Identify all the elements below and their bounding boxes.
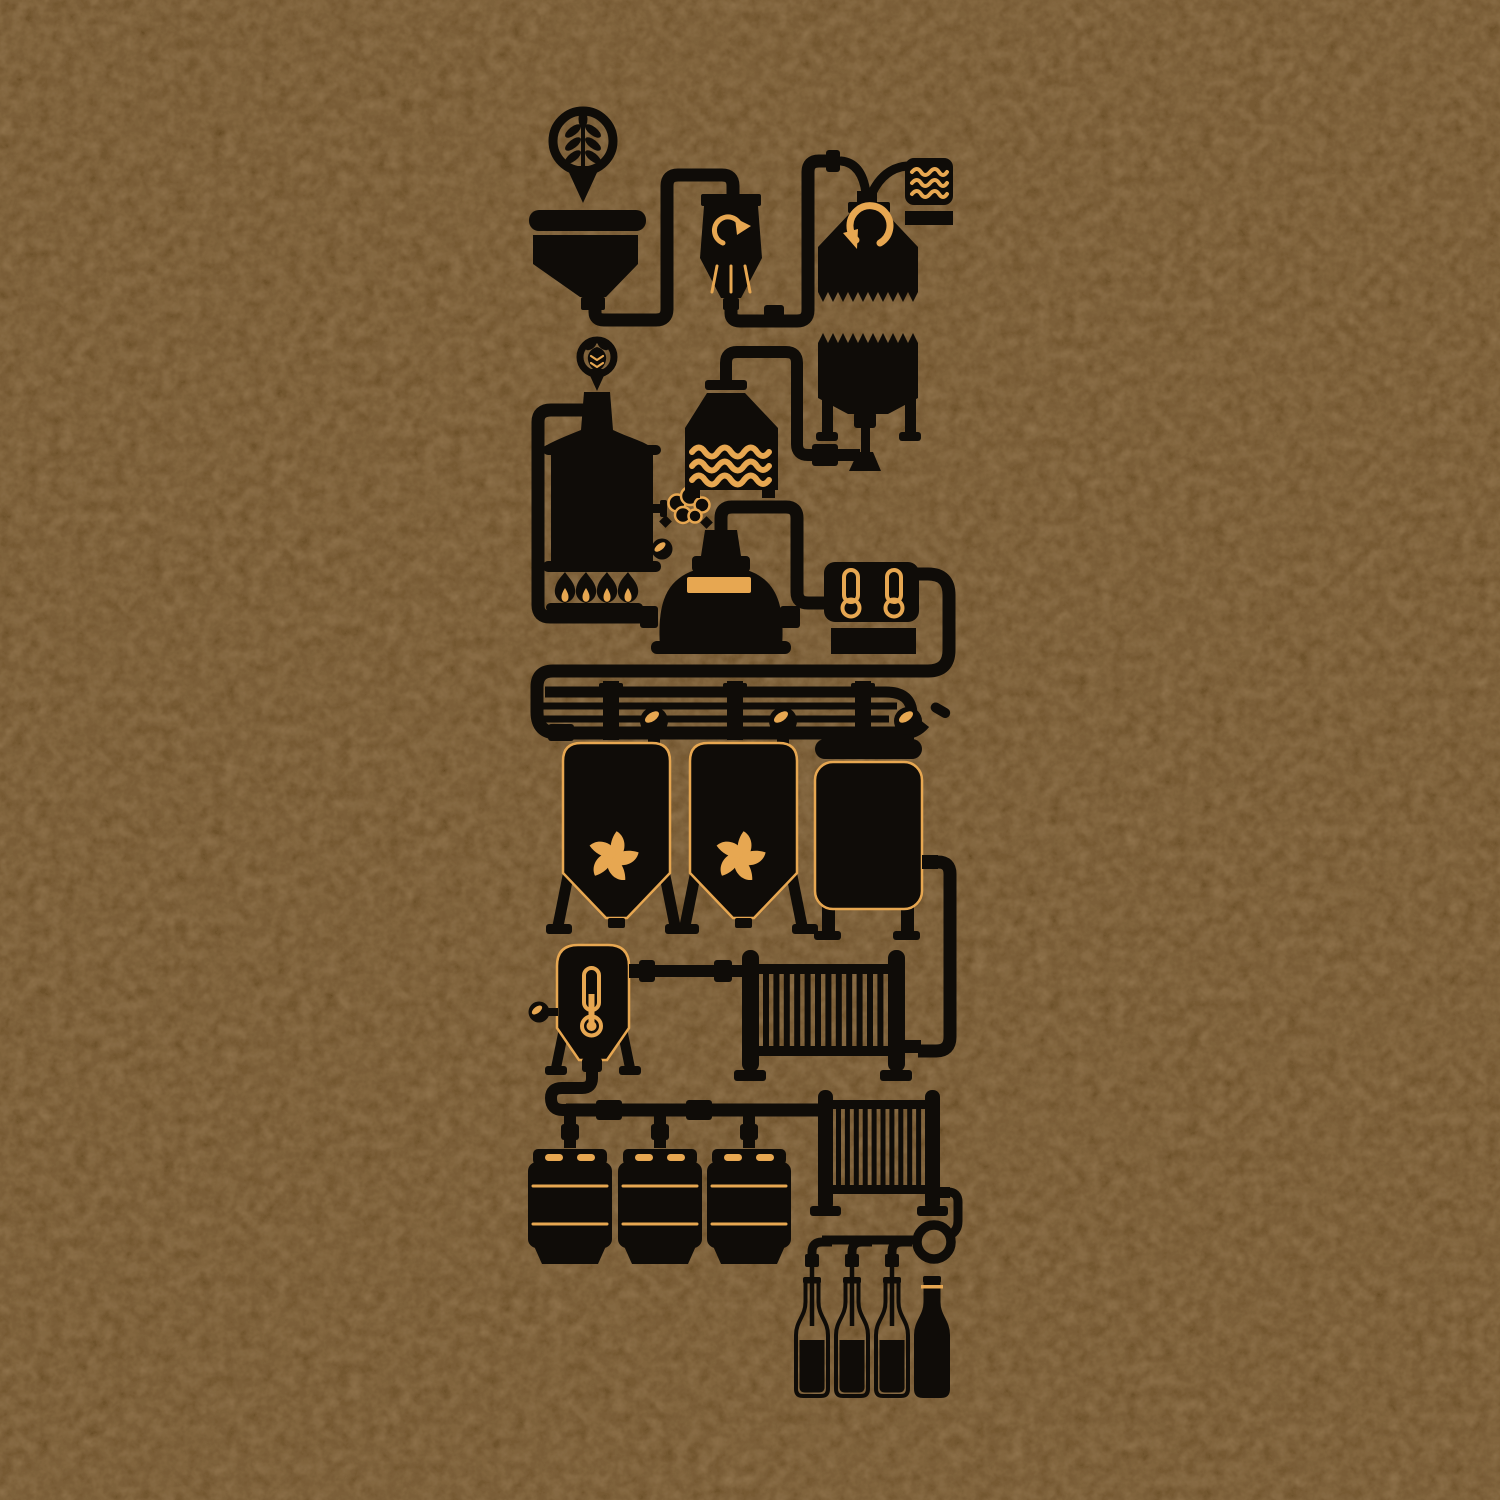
keg-handle-slot [724,1154,742,1161]
brewery-process-illustration [0,0,1500,1500]
hx-post [888,950,905,1072]
keg-handle-slot [545,1154,563,1161]
pipe-coupler [740,1124,758,1140]
pipe-coupler [714,960,732,982]
still-right-coupler [780,606,800,628]
cooler-rail [831,1100,927,1109]
pipe-coupler [596,1100,622,1120]
still-window [687,577,751,593]
fermenter-foot [546,924,572,934]
tank-foot [762,490,775,498]
tank-body [815,762,922,909]
pipe-coupler [686,1100,712,1120]
pipe-coupler [764,305,784,327]
hx-side-port [903,1040,921,1053]
grant-foot [816,432,838,441]
brewery-process-poster [0,0,1500,1500]
cooler-post [925,1090,940,1211]
tank-side-port [629,964,640,978]
tank-foot [893,931,920,940]
cap-seam [921,1285,943,1289]
pipe-coupler [561,1124,579,1140]
hx-foot [734,1070,766,1081]
panel-base [831,628,916,654]
hot-water-box [905,158,953,225]
keg-handle-slot [756,1154,774,1161]
tank-foot [814,931,841,940]
water-box-base [905,211,953,225]
pipe-coupler [812,444,838,466]
hx-rail [757,1046,890,1056]
tank-drain-coupler [582,1058,602,1072]
tank-foot [687,490,700,498]
grant-foot [899,432,921,441]
cooler-post [818,1090,833,1211]
tank-foot [619,1066,641,1075]
beer-level [840,1340,865,1393]
cooler-rail [831,1185,927,1194]
hx-rail [757,964,890,974]
still-left-coupler [640,606,658,628]
keg-handle-slot [635,1154,653,1161]
pipe-coupler [639,960,655,982]
pipe-coupler [548,724,574,741]
beer-level [880,1340,905,1393]
keg-handle-slot [667,1154,685,1161]
keg-handle-slot [577,1154,595,1161]
tank-foot [545,1066,567,1075]
temperature-panel [824,562,919,654]
grant-leg [905,397,916,435]
hx-post [742,950,759,1072]
fermenter-foot [792,924,818,934]
grant-leg [822,397,833,435]
keg-1 [528,1149,612,1264]
beer-level [800,1340,825,1393]
keg-3 [707,1149,791,1264]
tank-waves-icon [692,448,769,485]
tank-cap [815,739,922,759]
pipe-coupler [651,1124,669,1140]
keg-2 [618,1149,702,1264]
cooler-foot [810,1206,841,1216]
hx-foot [880,1070,912,1081]
fermenter-foot [673,924,699,934]
cooler-foot [917,1206,948,1216]
